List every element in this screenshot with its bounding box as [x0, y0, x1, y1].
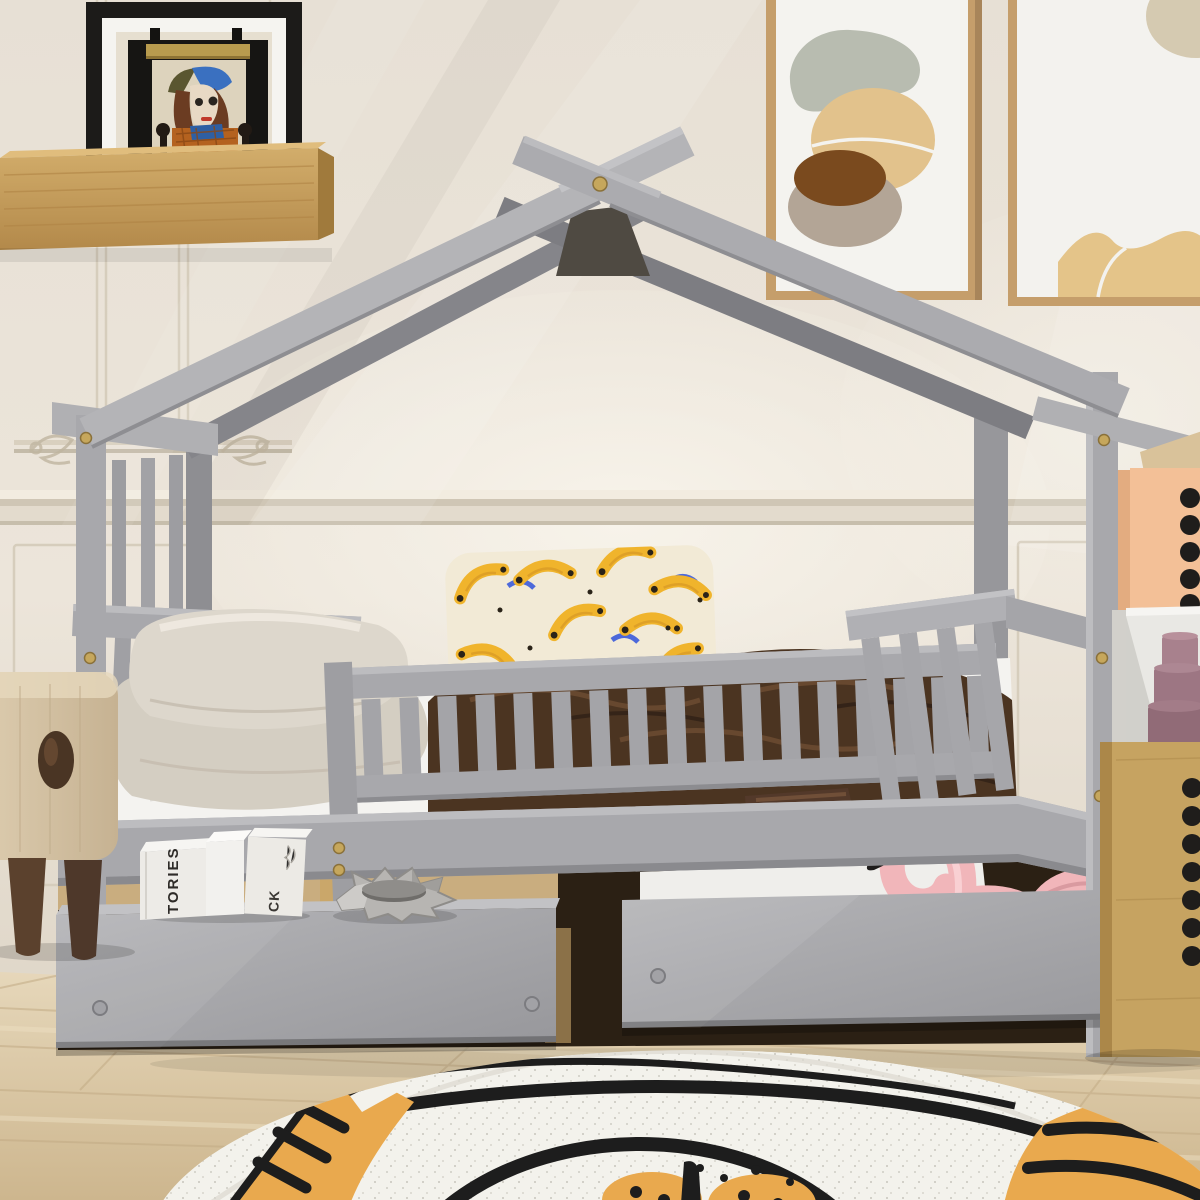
abstract-print-right — [1008, 0, 1200, 306]
scene-canvas: TORIES CK — [0, 0, 1200, 1200]
drawer-knob — [651, 969, 665, 983]
book-spine-text: TORIES — [165, 846, 182, 914]
bedroom-scene: TORIES CK — [0, 0, 1200, 1200]
book-spine-text: CK — [265, 889, 282, 912]
picasso-frame — [86, 2, 302, 160]
peach-box — [1118, 468, 1200, 614]
book-1: TORIES — [140, 838, 212, 920]
area-rug — [147, 1048, 1200, 1200]
drawer-knob — [525, 997, 539, 1011]
oak-box — [1100, 742, 1200, 1057]
drawer-left — [56, 898, 560, 1056]
drawer-knob — [93, 1001, 107, 1015]
gold-clip — [146, 44, 250, 58]
blob-brown — [794, 150, 886, 206]
